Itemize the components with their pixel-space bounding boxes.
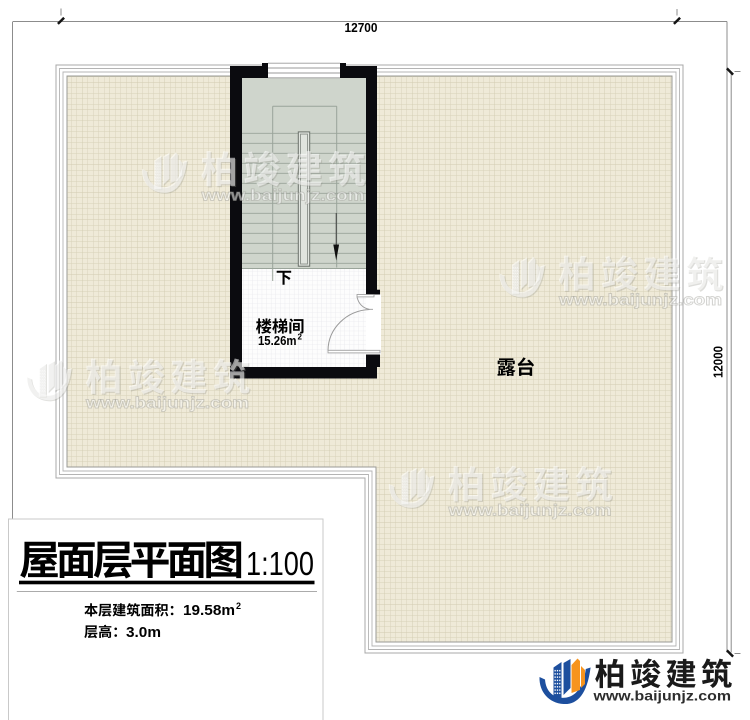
svg-text:www.baijunjz.com: www.baijunjz.com bbox=[447, 503, 611, 520]
svg-text:2: 2 bbox=[236, 601, 241, 611]
svg-text:19.58m: 19.58m bbox=[183, 603, 235, 619]
svg-text:www.baijunjz.com: www.baijunjz.com bbox=[85, 395, 249, 412]
svg-text:www.baijunjz.com: www.baijunjz.com bbox=[592, 689, 731, 704]
svg-text:1:100: 1:100 bbox=[246, 545, 314, 582]
svg-text:12000: 12000 bbox=[712, 346, 726, 378]
svg-text:15.26m: 15.26m bbox=[258, 334, 297, 348]
svg-text:2: 2 bbox=[298, 333, 303, 342]
svg-text:12700: 12700 bbox=[345, 21, 378, 35]
svg-text:3.0m: 3.0m bbox=[126, 625, 161, 641]
svg-text:www.baijunjz.com: www.baijunjz.com bbox=[558, 292, 722, 309]
svg-text:www.baijunjz.com: www.baijunjz.com bbox=[200, 188, 364, 205]
